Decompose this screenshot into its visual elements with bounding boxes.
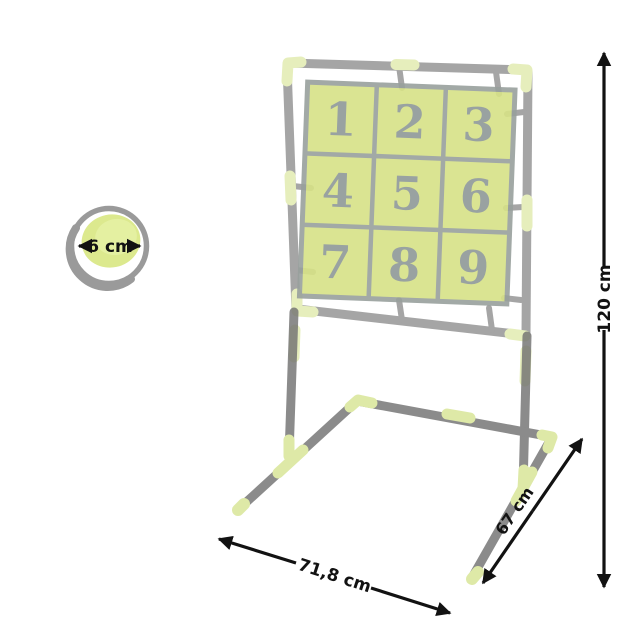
frame-corner-top-left <box>287 62 301 81</box>
panel-strap-bottom-left <box>399 300 402 320</box>
rear-crossbar-connector <box>447 414 470 418</box>
panel-strap-bottom-right <box>489 308 492 330</box>
grid-cell-2: 2 <box>393 94 427 149</box>
target-panel: 1 2 3 4 5 6 7 8 9 <box>299 82 515 304</box>
front-left-foot-cap <box>238 504 244 510</box>
frame-corner-top-right <box>513 69 527 87</box>
left-post-connector-mid <box>290 176 291 200</box>
grid-cell-7: 7 <box>318 235 352 290</box>
rear-right-elbow <box>542 435 552 448</box>
height-dimension-label: 120 cm <box>595 264 615 333</box>
rear-left-elbow <box>350 400 372 407</box>
grid-cell-4: 4 <box>321 163 355 218</box>
diagram-canvas: 6 cm <box>0 0 640 640</box>
width-dimension-line-left <box>219 539 296 563</box>
grid-cell-1: 1 <box>324 92 358 147</box>
target-stand-base <box>238 312 552 579</box>
grid-cell-5: 5 <box>390 166 424 221</box>
grid-cell-3: 3 <box>462 97 496 152</box>
tennis-ball: 6 cm <box>70 209 147 288</box>
ball-diameter-label: 6 cm <box>87 237 133 257</box>
grid-cell-8: 8 <box>387 237 421 292</box>
width-dimension-label: 71,8 cm <box>295 555 373 597</box>
left-lower-post <box>289 312 294 455</box>
width-dimension-line-right <box>371 588 450 613</box>
product-dimension-diagram: 6 cm <box>0 0 640 640</box>
target-panel-numbers: 1 2 3 4 5 6 7 8 9 <box>318 92 495 295</box>
top-bar-connector <box>396 65 414 66</box>
grid-cell-6: 6 <box>459 169 493 224</box>
grid-cell-9: 9 <box>456 240 490 295</box>
front-right-foot-cap <box>472 572 478 579</box>
